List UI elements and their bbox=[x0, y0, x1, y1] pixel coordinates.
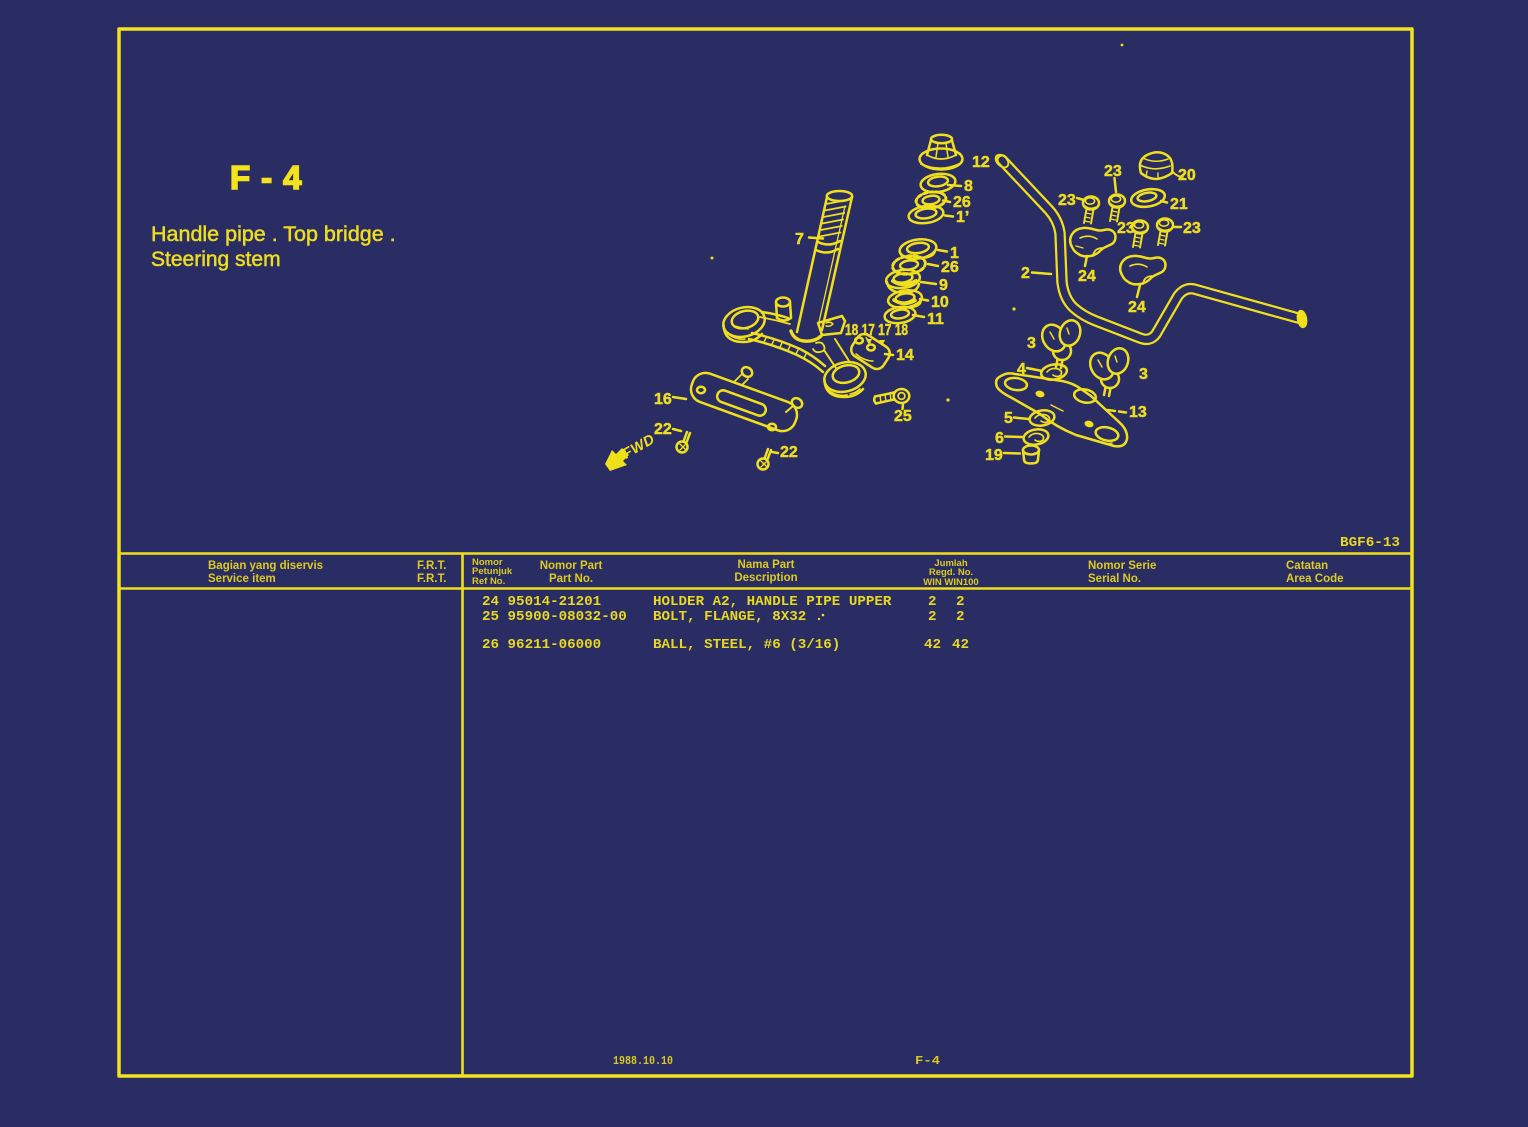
svg-text:Part No.: Part No. bbox=[549, 573, 593, 585]
svg-text:F.R.T.: F.R.T. bbox=[417, 560, 446, 572]
svg-text:1988.10.10: 1988.10.10 bbox=[613, 1055, 673, 1068]
svg-text:F.R.T.: F.R.T. bbox=[417, 573, 446, 585]
svg-text:7: 7 bbox=[795, 231, 804, 248]
svg-text:Nomor Part: Nomor Part bbox=[540, 560, 603, 572]
svg-text:22: 22 bbox=[654, 421, 672, 438]
svg-text:2: 2 bbox=[1021, 265, 1030, 282]
svg-text:Serial No.: Serial No. bbox=[1088, 573, 1141, 585]
svg-text:3: 3 bbox=[1027, 335, 1036, 352]
svg-text:BALL, STEEL, #6 (3/16): BALL, STEEL, #6 (3/16) bbox=[653, 637, 840, 653]
svg-text:25: 25 bbox=[894, 408, 912, 425]
svg-text:FWD: FWD bbox=[620, 431, 658, 462]
svg-text:13: 13 bbox=[1129, 404, 1147, 421]
svg-text:22: 22 bbox=[780, 444, 798, 461]
svg-text:11: 11 bbox=[927, 311, 944, 328]
svg-text:23: 23 bbox=[1104, 163, 1122, 180]
svg-text:6: 6 bbox=[995, 430, 1004, 447]
svg-text:42: 42 bbox=[952, 637, 969, 653]
svg-text:Catatan: Catatan bbox=[1286, 560, 1328, 572]
svg-text:23: 23 bbox=[1117, 220, 1135, 237]
svg-text:BGF6-13: BGF6-13 bbox=[1340, 535, 1400, 551]
svg-text:19: 19 bbox=[985, 447, 1003, 464]
svg-text:Ref No.: Ref No. bbox=[472, 576, 505, 587]
svg-text:BOLT, FLANGE, 8X32 .: BOLT, FLANGE, 8X32 . bbox=[653, 609, 823, 625]
svg-text:5: 5 bbox=[1004, 410, 1013, 427]
svg-text:42: 42 bbox=[924, 637, 941, 653]
svg-text:2: 2 bbox=[928, 594, 937, 610]
svg-text:HOLDER A2, HANDLE PIPE UPPER: HOLDER A2, HANDLE PIPE UPPER bbox=[653, 594, 892, 610]
svg-text:12: 12 bbox=[972, 154, 990, 171]
svg-text:WIN WIN100: WIN WIN100 bbox=[923, 577, 978, 588]
svg-text:24: 24 bbox=[1128, 299, 1146, 316]
svg-text:10: 10 bbox=[931, 294, 949, 311]
svg-text:21: 21 bbox=[1170, 196, 1188, 213]
svg-text:3: 3 bbox=[1139, 366, 1148, 383]
svg-text:F-4: F-4 bbox=[915, 1055, 940, 1068]
svg-text:Steering stem: Steering stem bbox=[151, 248, 281, 271]
svg-text:2: 2 bbox=[928, 609, 937, 625]
svg-text:26: 26 bbox=[941, 259, 959, 276]
svg-text:9: 9 bbox=[939, 277, 948, 294]
svg-text:Nama Part: Nama Part bbox=[738, 559, 795, 571]
svg-text:Bagian yang diservis: Bagian yang diservis bbox=[208, 560, 323, 572]
svg-text:23: 23 bbox=[1183, 220, 1201, 237]
svg-text:2: 2 bbox=[956, 594, 965, 610]
svg-text:Description: Description bbox=[734, 572, 797, 584]
svg-text:24: 24 bbox=[1078, 268, 1096, 285]
svg-text:Area Code: Area Code bbox=[1286, 573, 1344, 585]
svg-text:Handle pipe . Top bridge .: Handle pipe . Top bridge . bbox=[151, 222, 396, 246]
svg-text:20: 20 bbox=[1178, 167, 1196, 184]
svg-text:25 95900-08032-00: 25 95900-08032-00 bbox=[482, 609, 627, 625]
svg-text:16: 16 bbox=[654, 391, 672, 408]
svg-text:1’: 1’ bbox=[956, 209, 969, 226]
svg-text:24 95014-21201: 24 95014-21201 bbox=[482, 594, 601, 610]
svg-text:23: 23 bbox=[1058, 192, 1076, 209]
svg-text:Service item: Service item bbox=[208, 573, 276, 585]
svg-text:2: 2 bbox=[956, 609, 965, 625]
svg-text:14: 14 bbox=[896, 347, 914, 364]
svg-text:Nomor Serie: Nomor Serie bbox=[1088, 560, 1156, 572]
svg-text:F-4: F-4 bbox=[230, 159, 313, 196]
svg-text:18 17 17 18: 18 17 17 18 bbox=[845, 322, 908, 339]
svg-text:8: 8 bbox=[964, 178, 973, 195]
svg-text:26 96211-06000: 26 96211-06000 bbox=[482, 637, 601, 653]
